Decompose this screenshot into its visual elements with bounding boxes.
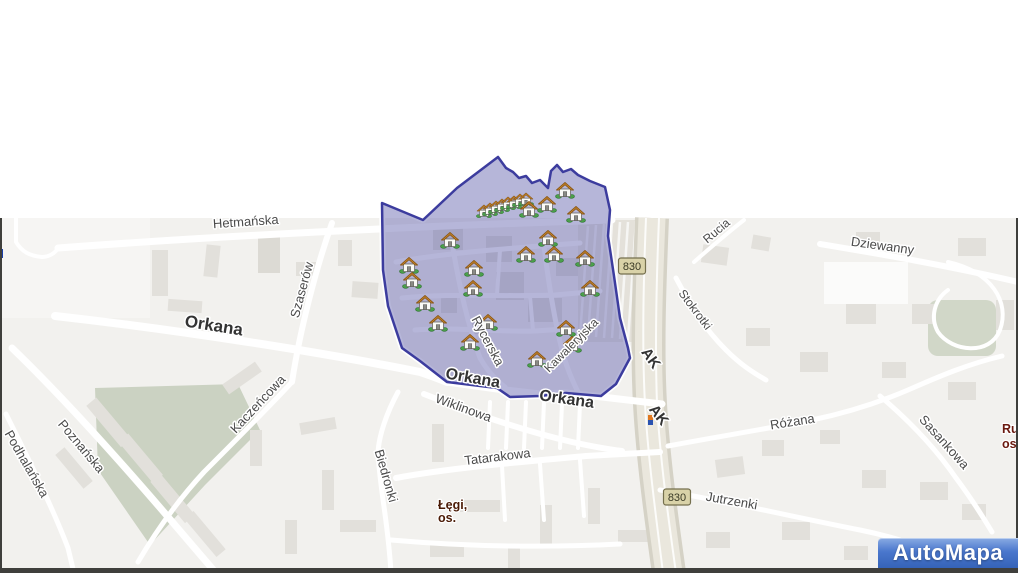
building-complex [824, 262, 908, 304]
map-canvas[interactable]: 830830 HetmańskaSzaserówOrkanaOrkanaOrka… [0, 0, 1018, 573]
route-badge-text: 830 [623, 261, 641, 273]
settlement-label: os [1002, 437, 1017, 451]
automapa-logo: AutoMapa [878, 538, 1018, 568]
settlement-label: Ru [1002, 422, 1018, 436]
settlement-label: Łęgi, [438, 498, 467, 512]
settlement-label: os. [438, 511, 456, 525]
route-badge-830: 830 [619, 258, 646, 274]
automapa-logo-text: AutoMapa [893, 542, 1003, 564]
map-graphics: 830830 HetmańskaSzaserówOrkanaOrkanaOrka… [0, 0, 1018, 573]
route-badge-830: 830 [664, 489, 691, 505]
map-tile-light [0, 218, 150, 318]
route-badge-text: 830 [668, 492, 686, 504]
